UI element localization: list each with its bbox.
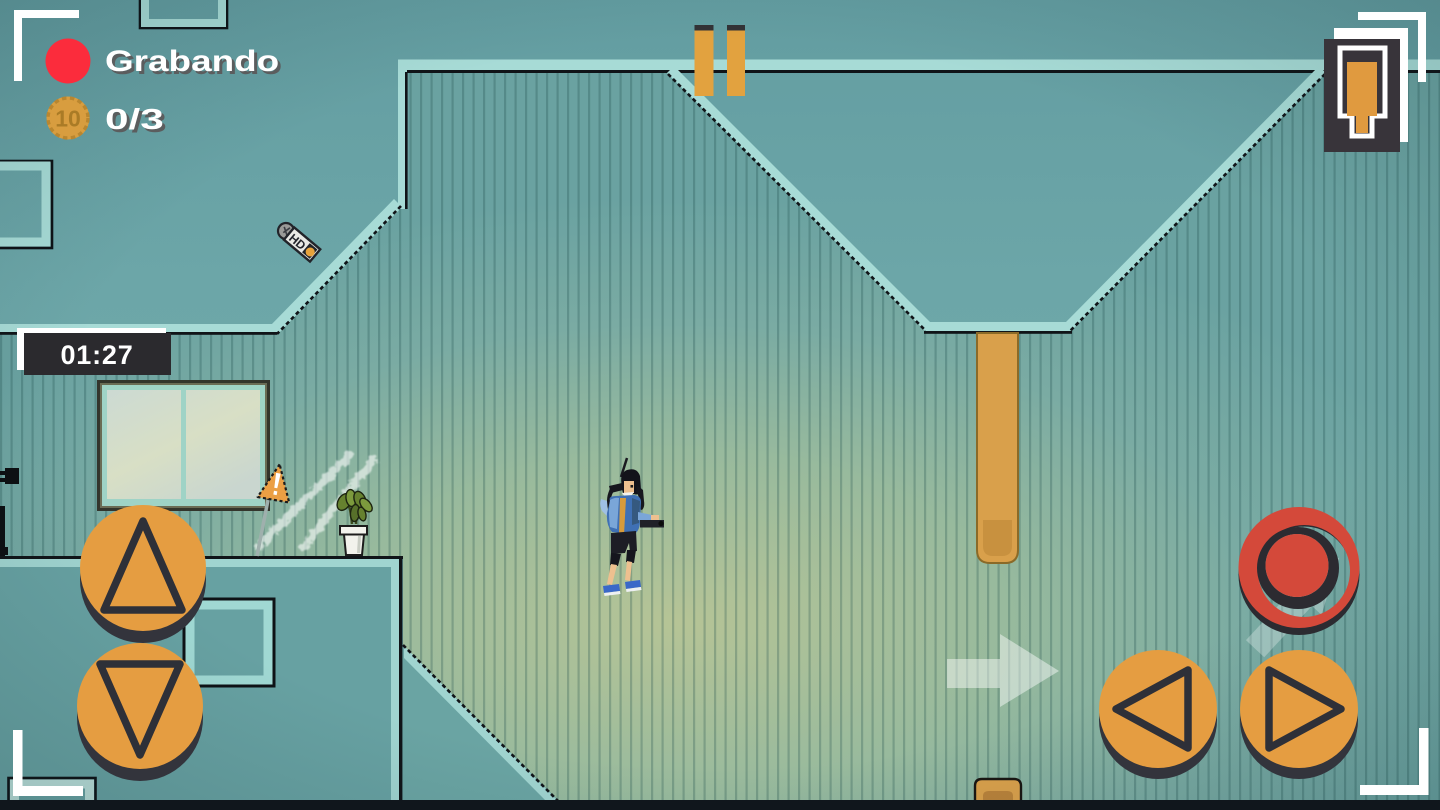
svg-text:Grabando: Grabando bbox=[105, 45, 279, 78]
svg-text:0/3: 0/3 bbox=[105, 103, 164, 136]
